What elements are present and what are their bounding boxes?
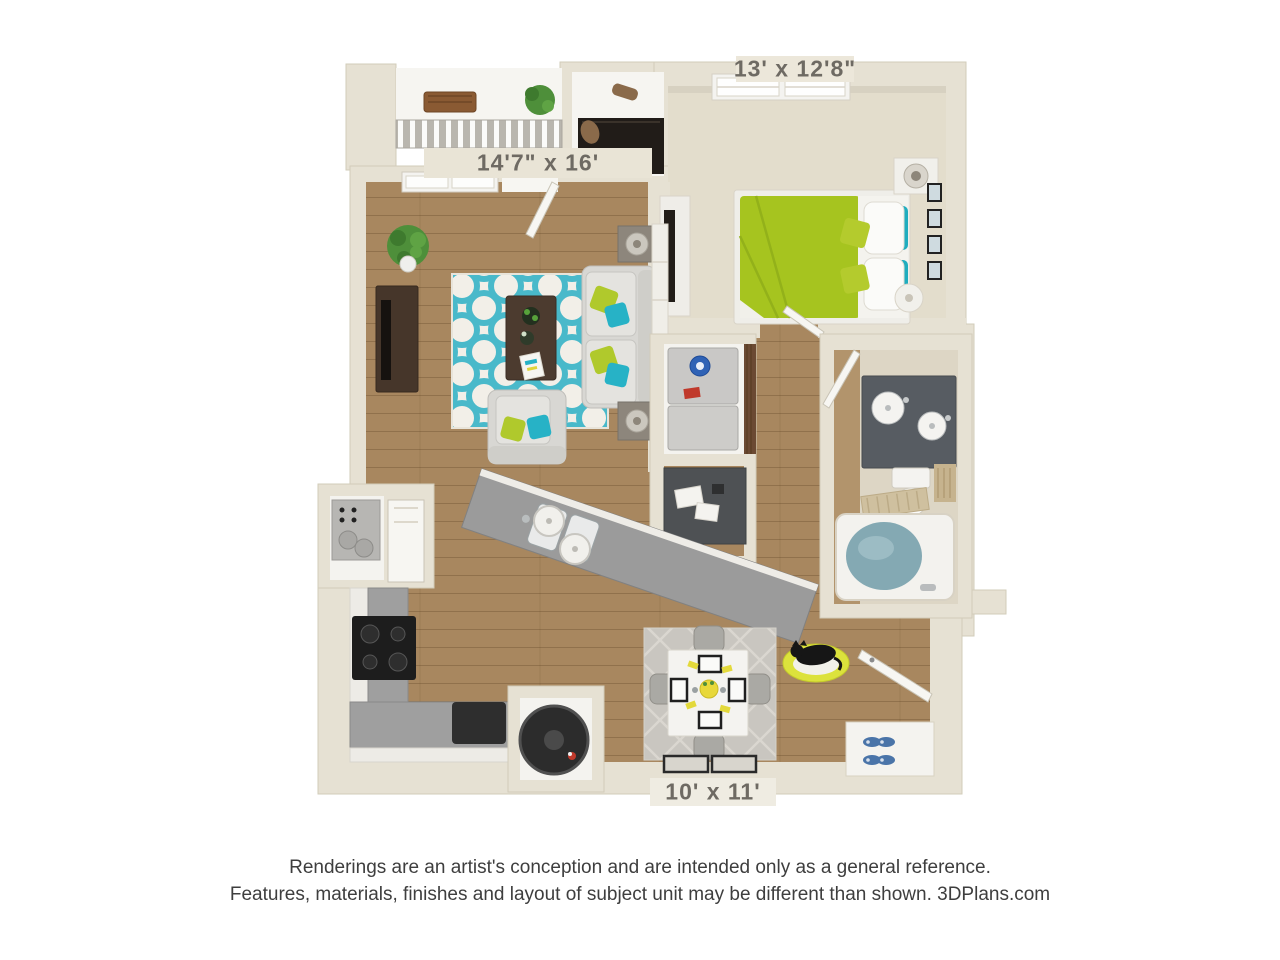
magazine (520, 352, 545, 380)
pantry-appliance (332, 500, 380, 560)
plant-pot (400, 256, 416, 272)
pillow (864, 202, 904, 254)
faucet (945, 415, 951, 421)
teal-pillow (604, 362, 630, 388)
floorplan-page: 13' x 12'8" 14'7" x 16' 10' x 11' Render… (0, 0, 1280, 960)
doormat (712, 756, 756, 772)
balcony-left-wall (346, 64, 396, 170)
door-handle (870, 658, 875, 663)
floorplan-rendering (0, 0, 1280, 830)
desk-item (712, 484, 724, 494)
papers (695, 503, 719, 522)
armchair (488, 390, 566, 464)
dining-chair (694, 626, 724, 652)
teal-pillow (526, 414, 552, 440)
living-room-dimension-label: 14'7" x 16' (477, 150, 599, 177)
disclaimer-line2: Features, materials, finishes and layout… (0, 881, 1280, 908)
countertop-appliance (452, 702, 506, 744)
vanity (862, 376, 956, 468)
tub-faucet (920, 584, 936, 591)
dining-dimension-label: 10' x 11' (665, 779, 760, 806)
stove (352, 616, 416, 680)
duvet (740, 196, 860, 318)
lime-pillow (840, 264, 871, 295)
sofa (582, 266, 656, 408)
coffee-table (506, 296, 556, 380)
centerpiece-bowl (700, 680, 718, 698)
pantry-door (388, 500, 424, 582)
balcony-railing (396, 120, 562, 148)
tv (381, 300, 391, 380)
bedroom-dimension-label: 13' x 12'8" (734, 56, 856, 83)
laundry-closet (664, 344, 756, 454)
cabinet-fronts (350, 748, 512, 762)
faucet (903, 397, 909, 403)
disclaimer-line1: Renderings are an artist's conception an… (0, 854, 1280, 881)
dryer (668, 406, 738, 450)
bathroom (823, 350, 958, 604)
bathtub (836, 514, 954, 600)
entry-closet-floor (846, 722, 934, 776)
disclaimer: Renderings are an artist's conception an… (0, 854, 1280, 908)
utility-closet (508, 686, 604, 792)
bed (734, 190, 910, 324)
doormat (664, 756, 708, 772)
bifold-door (744, 344, 756, 454)
